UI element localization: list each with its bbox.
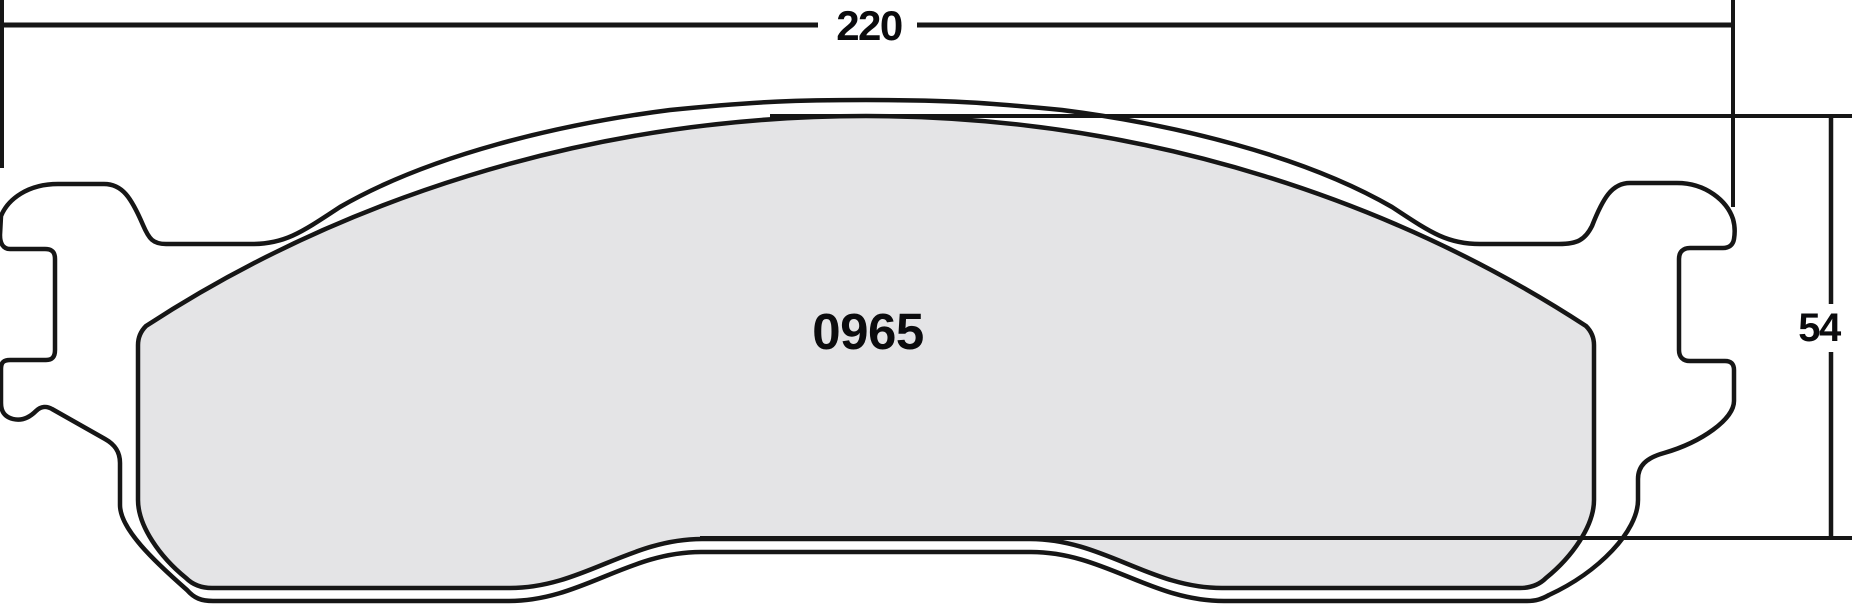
height-dimension-label: 54 xyxy=(1798,306,1842,350)
brake-pad-drawing-canvas: 220 54 0965 xyxy=(0,0,1855,604)
technical-drawing: 220 54 0965 xyxy=(0,0,1855,604)
width-dimension-label: 220 xyxy=(836,2,902,49)
part-number-label: 0965 xyxy=(812,303,923,360)
